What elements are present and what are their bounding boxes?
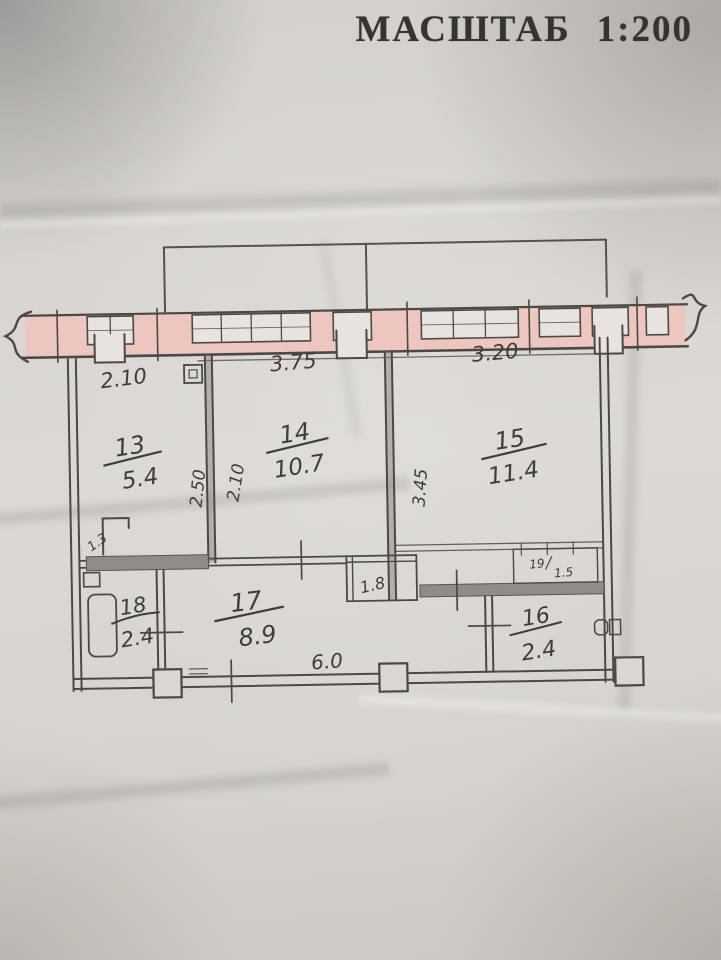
room-19-label: 19 1.5 bbox=[529, 554, 574, 583]
dimension-labels: 2.10 3.75 3.20 2.50 2.10 3.45 6.0 bbox=[98, 339, 524, 678]
vent-fixture bbox=[594, 619, 620, 634]
columns bbox=[153, 657, 643, 698]
closet-area-note: 1.8 bbox=[358, 573, 387, 597]
balcony-door bbox=[336, 330, 366, 359]
room-17-number: 17 bbox=[229, 585, 264, 618]
door-leaf bbox=[103, 518, 130, 554]
room-13-label: 13 5.4 bbox=[100, 428, 167, 497]
room-14-label: 14 10.7 bbox=[263, 414, 334, 484]
column bbox=[615, 657, 643, 685]
room-13-area: 5.4 bbox=[120, 463, 160, 494]
window bbox=[646, 307, 668, 335]
room-13-number: 13 bbox=[113, 430, 148, 462]
dim-room13-depth-right: 2.10 bbox=[224, 462, 250, 503]
balcony-door bbox=[94, 334, 124, 363]
room-15-number: 15 bbox=[493, 423, 528, 455]
dim-room15-width: 3.20 bbox=[471, 339, 520, 367]
floor-plan: 2.10 3.75 3.20 2.50 2.10 3.45 6.0 13 5.4… bbox=[0, 0, 721, 960]
balcony-outline bbox=[164, 240, 607, 316]
dim-room13-width: 2.10 bbox=[99, 364, 148, 394]
dim-room13-depth-left: 2.50 bbox=[187, 469, 211, 509]
dim-room14-width: 3.75 bbox=[269, 348, 318, 376]
room-14-number: 14 bbox=[277, 417, 312, 449]
room-17-area: 8.9 bbox=[237, 620, 278, 652]
wall-break-right bbox=[683, 294, 706, 340]
dim-bottom-length: 6.0 bbox=[310, 648, 343, 674]
column bbox=[379, 663, 407, 691]
room-15-label: 15 11.4 bbox=[478, 420, 552, 490]
electric-panel bbox=[184, 365, 202, 383]
meter-box bbox=[84, 573, 100, 587]
door-note: 1.3 bbox=[85, 531, 111, 555]
room-19-number: 19 bbox=[529, 556, 545, 571]
shaded-wall bbox=[86, 555, 208, 571]
bathtub bbox=[88, 594, 117, 656]
dim-room15-depth: 3.45 bbox=[410, 468, 433, 507]
room-19-area: 1.5 bbox=[554, 565, 574, 581]
room-16-label: 16 2.4 bbox=[506, 601, 567, 667]
room-16-area: 2.4 bbox=[520, 636, 558, 666]
room-15-area: 11.4 bbox=[486, 457, 541, 491]
room-labels: 13 5.4 14 10.7 15 11.4 17 8.9 bbox=[99, 410, 575, 675]
room-18-area: 2.4 bbox=[119, 623, 156, 652]
room-17-label: 17 8.9 bbox=[212, 583, 288, 655]
shaded-wall bbox=[420, 582, 604, 597]
column bbox=[153, 669, 181, 697]
room-14-area: 10.7 bbox=[272, 450, 327, 484]
